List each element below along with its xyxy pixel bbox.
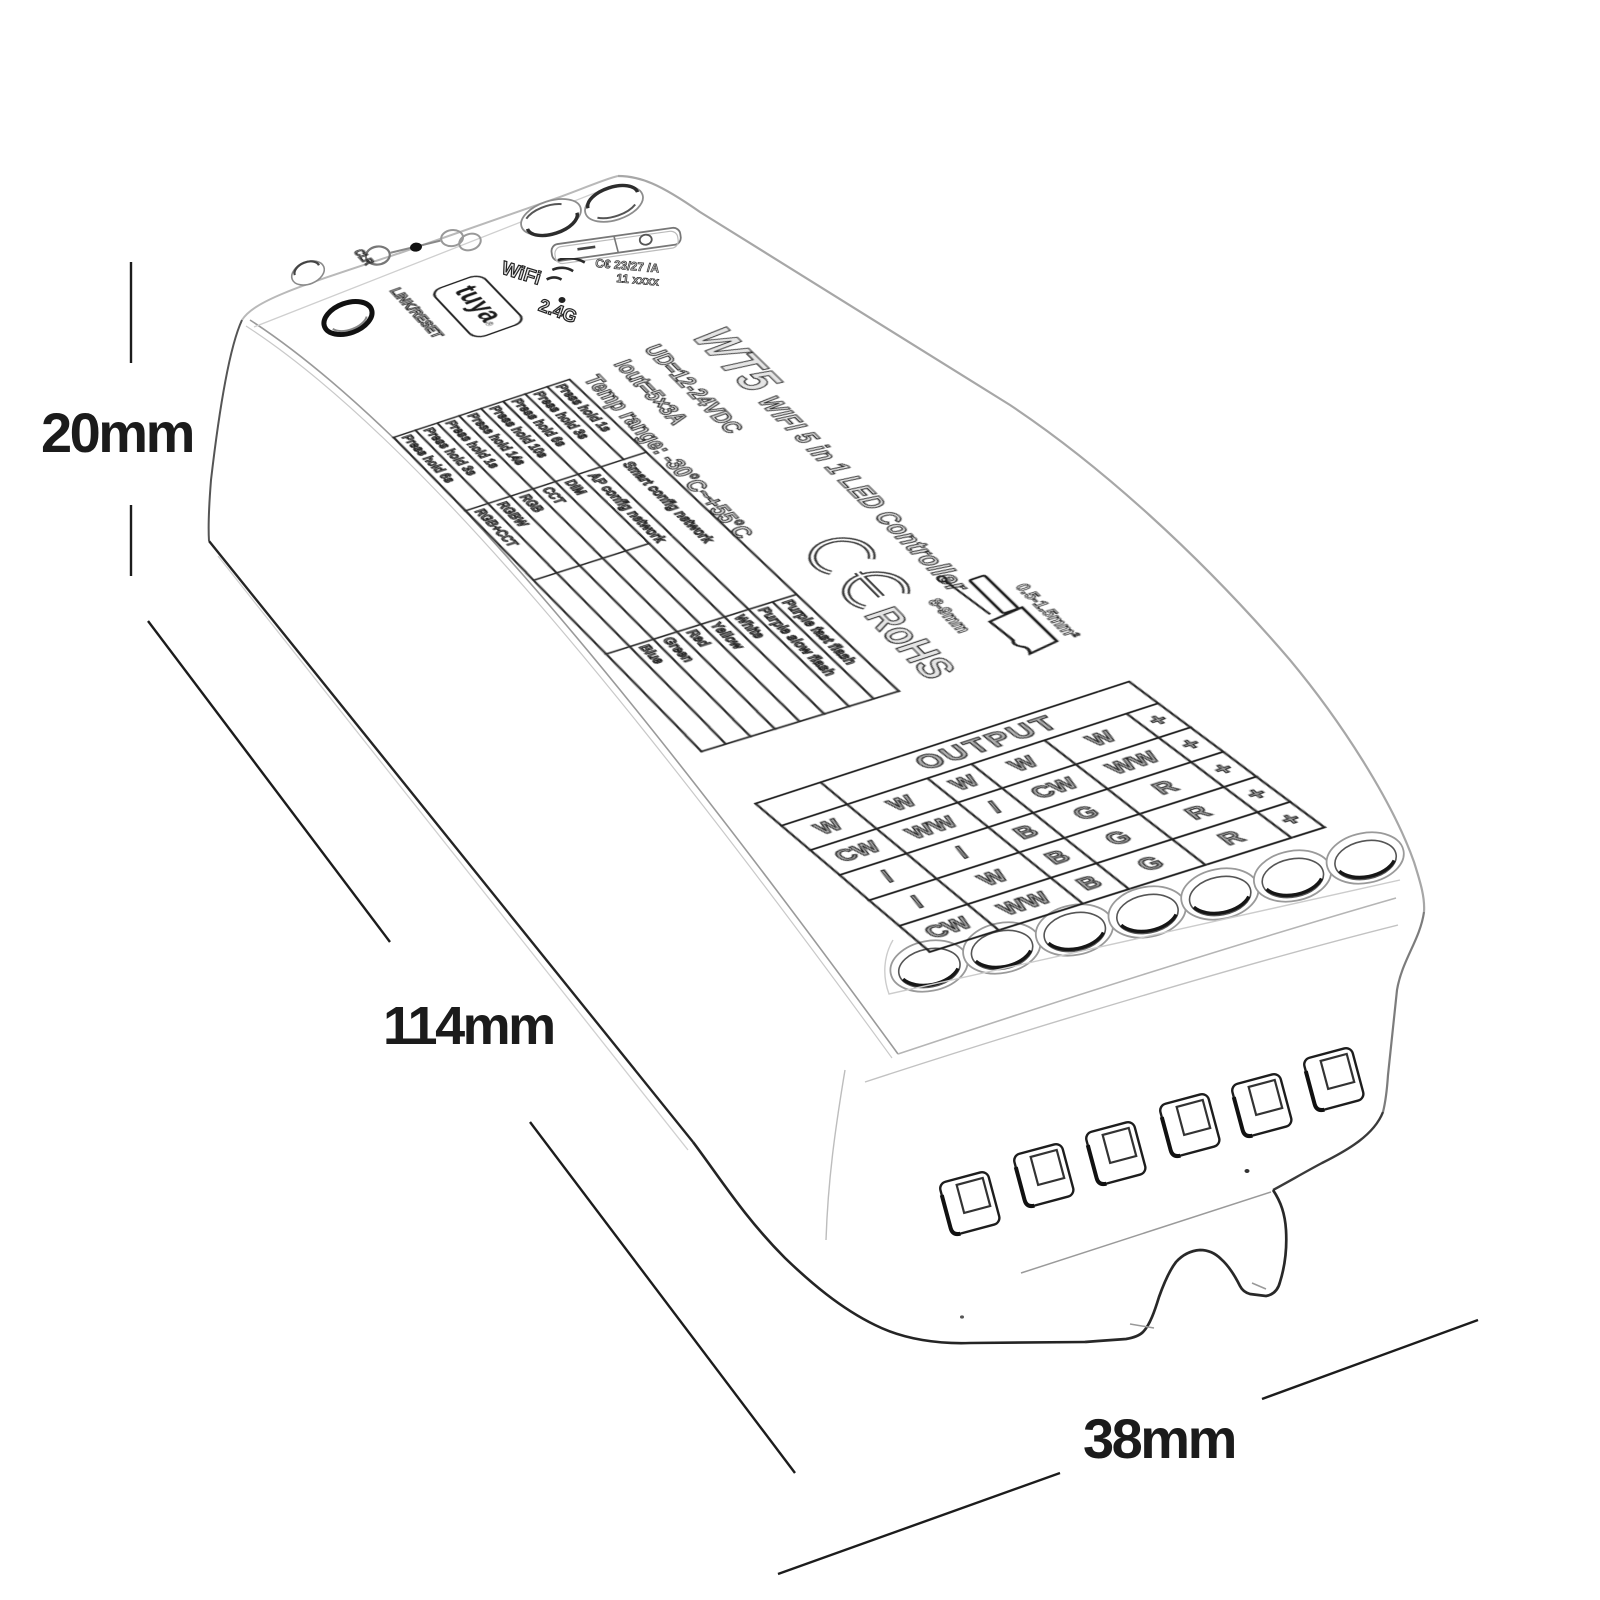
svg-text:8-9mm: 8-9mm — [924, 596, 976, 635]
